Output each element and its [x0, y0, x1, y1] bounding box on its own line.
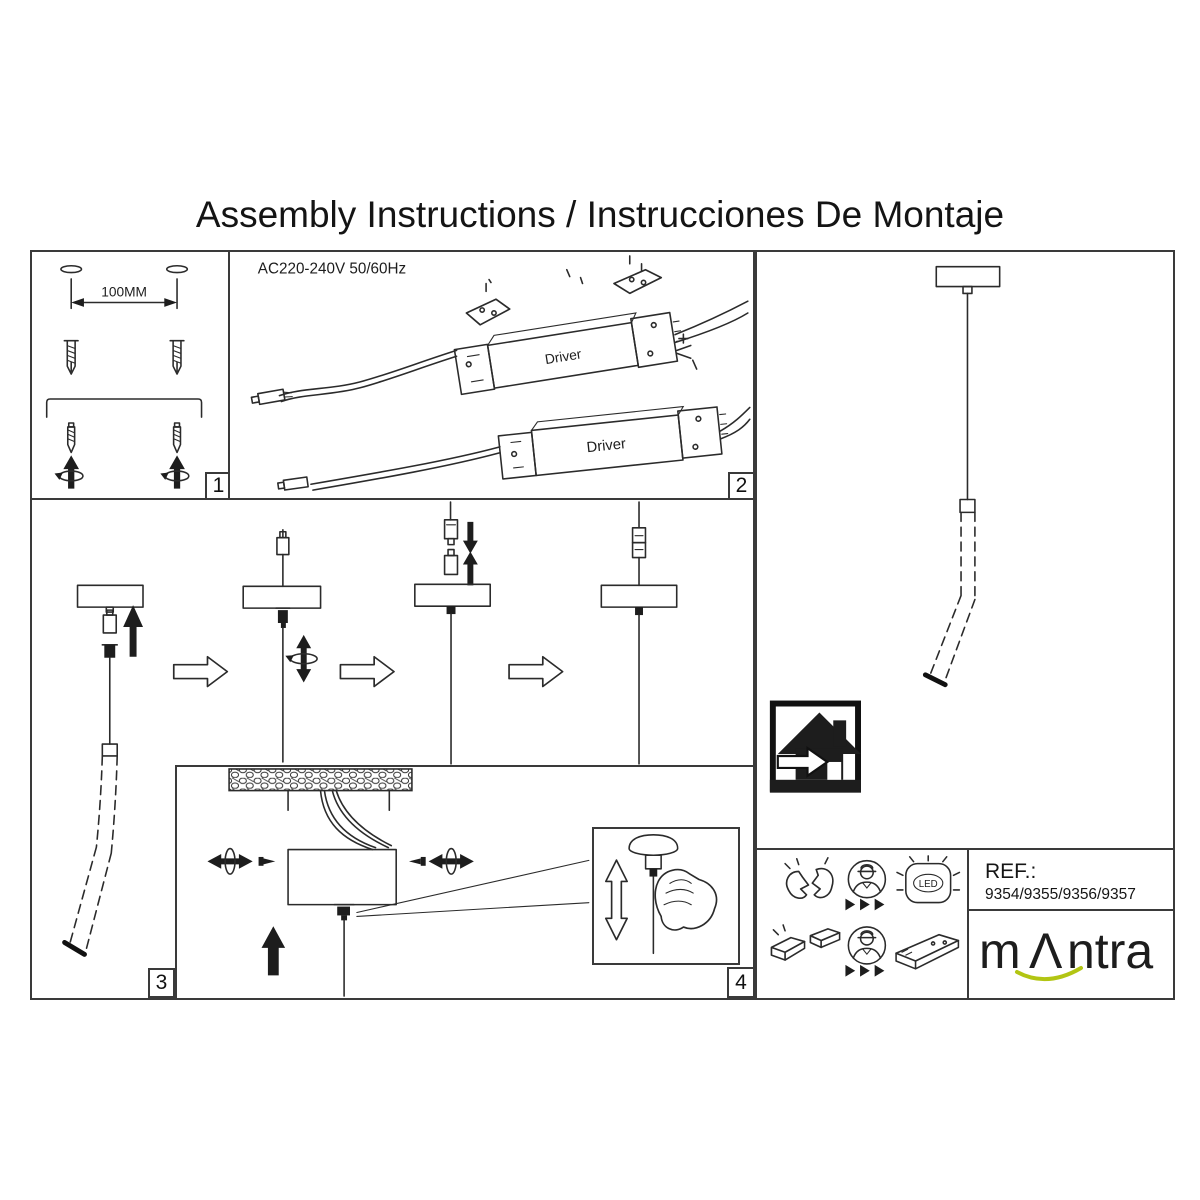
hand-adjust-icon [655, 870, 716, 930]
up-arrow-icon [123, 605, 143, 657]
driver-label-top: Driver [544, 346, 583, 367]
step-assembled-pendant [601, 502, 676, 764]
drill-holes-icon [61, 266, 187, 273]
driver-assembled-view: Driver [497, 402, 730, 479]
ceiling-section [229, 769, 412, 850]
up-arrow-icon [463, 552, 478, 586]
panel-number-3: 3 [148, 968, 175, 998]
mantra-logo: m Λ ntra [977, 916, 1167, 990]
up-arrow-icon [262, 926, 286, 975]
broken-lamp-icon [785, 858, 833, 898]
indoor-use-house-icon [770, 704, 861, 793]
service-icons: LED [757, 850, 967, 998]
driver-label-bottom: Driver [586, 436, 627, 456]
logo-lambda: Λ [1029, 923, 1063, 979]
screw-rotation-icon [285, 635, 317, 683]
driver-wiring-diagram: AC220-240V 50/60Hz Driver [230, 252, 753, 498]
wire-plug [251, 388, 293, 406]
ref-label: REF.: [985, 860, 1173, 884]
panel-number-1-label: 1 [213, 474, 225, 498]
mains-wire [251, 350, 457, 405]
broken-driver-icon [771, 925, 839, 960]
mounting-bracket [47, 399, 202, 417]
screw-icon [68, 423, 75, 452]
panel-mounting: 100MM [30, 250, 230, 500]
step-screw-cable-grip [243, 530, 320, 762]
page-title: Assembly Instructions / Instrucciones De… [0, 194, 1200, 236]
ref-divider [969, 909, 1173, 911]
panel-number-3-label: 3 [156, 971, 168, 995]
hole-distance-label: 100MM [101, 285, 147, 300]
next-step-arrow-icon [340, 657, 394, 687]
wall-plug-icon [64, 341, 78, 374]
up-down-arrow-icon [606, 860, 627, 940]
panel-driver-wiring: AC220-240V 50/60Hz Driver [228, 250, 755, 500]
mounting-hardware-diagram: 100MM [32, 252, 228, 498]
instruction-sheet: Assembly Instructions / Instrucciones De… [0, 0, 1200, 1200]
driver-mounting-bracket-icon [567, 256, 661, 293]
service-person-icon [848, 927, 885, 964]
screw-rotation-icon [160, 455, 188, 488]
replace-arrows-icon [845, 965, 884, 977]
panel-number-4-label: 4 [735, 971, 747, 995]
logo-text-m: m [979, 923, 1021, 979]
panel-overview [755, 250, 1175, 850]
led-lamp-icon: LED [897, 856, 959, 903]
replace-arrows-icon [845, 899, 884, 911]
wall-plug-icon [170, 341, 184, 374]
power-rating-label: AC220-240V 50/60Hz [258, 261, 406, 278]
panel-number-2: 2 [728, 472, 755, 500]
service-person-icon [848, 861, 885, 898]
canopy-side-view [288, 850, 396, 996]
down-arrow-icon [463, 522, 478, 554]
next-step-arrow-icon [509, 657, 563, 687]
panel-height-adjust-inset [592, 827, 740, 965]
screw-icon [174, 423, 181, 452]
height-adjust-diagram [594, 829, 738, 963]
screw-rotation-icon [409, 849, 474, 875]
panel-number-4: 4 [727, 967, 755, 998]
ref-box: REF.: 9354/9355/9356/9357 m Λ ntra [967, 848, 1175, 1000]
led-label: LED [919, 879, 938, 890]
driver-output-wires [675, 301, 748, 342]
detail-leader-lines [357, 860, 589, 916]
dimension-line: 100MM [71, 279, 177, 308]
driver-box-icon [896, 935, 958, 969]
step-connect-plug [415, 502, 490, 764]
service-icons-box: LED [755, 848, 969, 1000]
screw-rotation-icon [55, 455, 83, 488]
next-step-arrow-icon [174, 657, 228, 687]
pendant-lamp-overview [757, 252, 1173, 848]
driver-mounting-bracket-icon [466, 280, 509, 325]
step-attach-cable-to-canopy [65, 585, 143, 954]
pendant-lamp-drawing [925, 267, 999, 685]
ref-models: 9354/9355/9356/9357 [985, 886, 1173, 904]
panel-number-2-label: 2 [736, 474, 748, 498]
screw-rotation-icon [207, 849, 275, 875]
